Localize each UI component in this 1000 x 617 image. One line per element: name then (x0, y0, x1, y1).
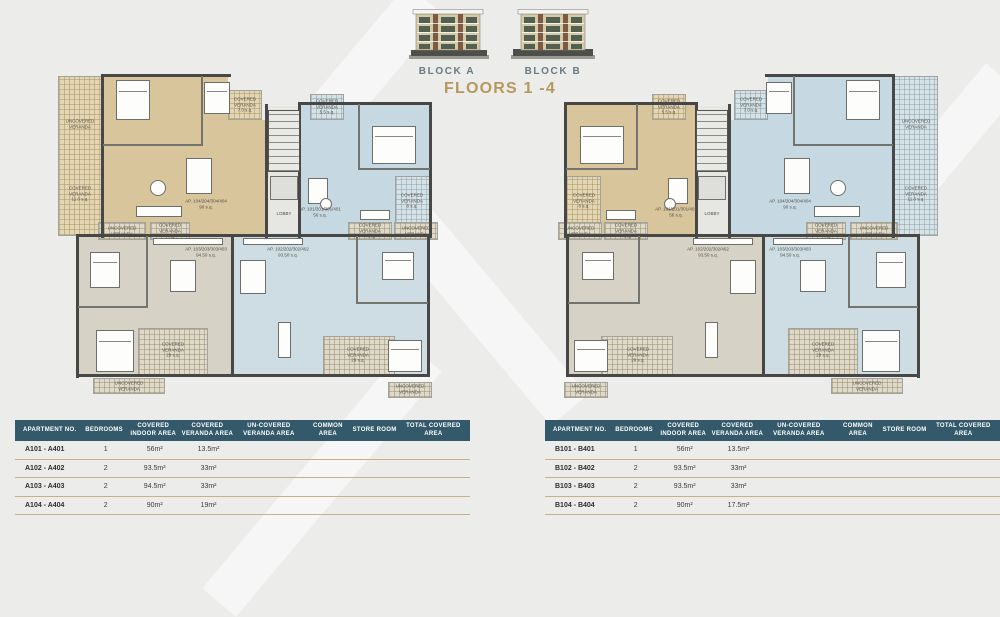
column-header: APARTMENT NO. (545, 427, 612, 434)
wall (358, 104, 360, 170)
wall (101, 74, 231, 77)
column-header: UN-COVERED VERANDA AREA (234, 423, 303, 437)
column-header: COVERED VERANDA AREA (180, 423, 234, 437)
wall (201, 76, 203, 146)
table-header-row: APARTMENT NO.BEDROOMSCOVERED INDOOR AREA… (15, 420, 470, 441)
dining-table (730, 260, 756, 294)
block-a-area-table: APARTMENT NO.BEDROOMSCOVERED INDOOR AREA… (15, 420, 470, 515)
wall (848, 306, 918, 308)
wall (103, 144, 203, 146)
table-cell: 93.5m² (658, 465, 712, 472)
plan-label: COVERED VERANDA 5.5 s.q. (304, 99, 350, 116)
sofa (606, 210, 636, 220)
wall (78, 306, 148, 308)
column-header: UN-COVERED VERANDA AREA (764, 423, 833, 437)
table-cell: A101 - A401 (15, 446, 84, 453)
table-cell: 1 (614, 446, 658, 453)
kitchen-counter (693, 238, 753, 245)
table-cell: B102 - B402 (545, 465, 614, 472)
veranda-region (893, 76, 938, 236)
column-header: STORE ROOM (882, 427, 926, 434)
column-header: COVERED INDOOR AREA (126, 423, 180, 437)
bed (862, 330, 900, 372)
plan-label: COVERED VERANDA 4 s.q. (147, 223, 193, 240)
table-cell: 13.5m² (712, 446, 766, 453)
wall (566, 234, 569, 376)
table-cell: B104 - B404 (545, 502, 614, 509)
elevator (698, 176, 726, 200)
header: BLOCK A (403, 6, 597, 98)
plan-label: COVERED VERANDA 29 s.q. (800, 342, 846, 359)
table-cell: A102 - A402 (15, 465, 84, 472)
column-header: STORE ROOM (352, 427, 396, 434)
table-cell: A104 - A404 (15, 502, 84, 509)
plan-label: COVERED VERANDA 29 s.q. (615, 347, 661, 364)
plan-label: UNCOVERED VERANDA (387, 383, 433, 394)
table-cell: 19m² (182, 502, 236, 509)
bed (846, 80, 880, 120)
table-cell: 90m² (128, 502, 182, 509)
table-cell: 33m² (182, 483, 236, 490)
column-header: BEDROOMS (82, 427, 126, 434)
bed (388, 340, 422, 372)
plan-label: UNCOVERED VERANDA (393, 225, 439, 236)
table-row: B104 - B404290m²17.5m² (545, 497, 1000, 516)
column-header: TOTAL COVERED AREA (927, 423, 1000, 437)
sofa (814, 206, 860, 217)
table-cell: 2 (614, 465, 658, 472)
sofa (136, 206, 182, 217)
plan-label: UNCOVERED VERANDA (57, 118, 103, 129)
table-cell: 1 (84, 446, 128, 453)
wall (231, 374, 430, 377)
wall (356, 236, 358, 304)
wall (429, 102, 432, 238)
plan-label: UNCOVERED VERANDA (557, 225, 603, 236)
bed (116, 80, 150, 120)
table-cell: 33m² (712, 465, 766, 472)
kitchen-counter (243, 238, 303, 245)
plan-label: COVERED VERANDA 11.0 s.q. (57, 186, 103, 203)
wall (231, 234, 234, 377)
block-b-label: BLOCK B (525, 66, 582, 77)
plan-label: COVERED VERANDA 4 s.q. (803, 223, 849, 240)
plan-label: UNCOVERED VERANDA (851, 225, 897, 236)
bed (382, 252, 414, 280)
table-row: A101 - A401156m²13.5m² (15, 441, 470, 460)
wall (793, 144, 893, 146)
table-cell: B103 - B403 (545, 483, 614, 490)
dining-table (186, 158, 212, 194)
dining-table (800, 260, 826, 292)
table-header-row: APARTMENT NO.BEDROOMSCOVERED INDOOR AREA… (545, 420, 1000, 441)
table-cell: 93.5m² (128, 465, 182, 472)
wall (356, 302, 428, 304)
wall (146, 236, 148, 306)
block-b-area-table: APARTMENT NO.BEDROOMSCOVERED INDOOR AREA… (545, 420, 1000, 515)
table-row: A102 - A402293.5m²33m² (15, 460, 470, 479)
table-row: B103 - B403293.5m²33m² (545, 478, 1000, 497)
table-cell: A103 - A403 (15, 483, 84, 490)
bed (90, 252, 120, 288)
block-a-elevation (403, 6, 491, 62)
staircase (268, 110, 300, 172)
bed (574, 340, 608, 372)
plan-label: UNCOVERED VERANDA (106, 380, 152, 391)
table-cell: 2 (614, 483, 658, 490)
column-header: COMMON AREA (303, 423, 352, 437)
table-cell: 56m² (128, 446, 182, 453)
plan-label: AP. 103/203/303/403 94.50 s.q. (183, 246, 229, 257)
table-row: B102 - B402293.5m²33m² (545, 460, 1000, 479)
plan-label: UNCOVERED VERANDA (563, 383, 609, 394)
table-cell: 2 (84, 465, 128, 472)
wall (793, 76, 795, 146)
dining-table (170, 260, 196, 292)
plan-label: UNCOVERED VERANDA (844, 380, 890, 391)
table-cell: 90m² (658, 502, 712, 509)
bed (372, 126, 416, 164)
wall (568, 302, 640, 304)
table-cell: 94.5m² (128, 483, 182, 490)
block-a-column: BLOCK A (403, 6, 491, 77)
table-cell: 33m² (182, 465, 236, 472)
wall (566, 168, 638, 170)
floorplan-block-b: UNCOVERED VERANDACOVERED VERANDA 11.0 s.… (548, 66, 938, 396)
sofa (705, 322, 718, 358)
wall (358, 168, 430, 170)
plan-label: UNCOVERED VERANDA (99, 225, 145, 236)
plan-label: COVERED VERANDA 8 s.q. (561, 193, 607, 210)
unit-region-104 (228, 120, 268, 236)
sofa (360, 210, 390, 220)
column-header: APARTMENT NO. (15, 427, 82, 434)
table-cell: 33m² (712, 483, 766, 490)
veranda-region (58, 76, 103, 236)
plan-label: UNCOVERED VERANDA (893, 118, 939, 129)
table-row: B101 - B401156m²13.5m² (545, 441, 1000, 460)
floorplan-sheet: BLOCK A (0, 0, 1000, 500)
plan-label: COVERED VERANDA 11.0 s.q. (893, 186, 939, 203)
table-cell: 13.5m² (182, 446, 236, 453)
plan-label: COVERED VERANDA 7.0 s.q. (728, 97, 774, 114)
wall (760, 374, 920, 377)
wall (638, 236, 640, 304)
plan-label: AP. 102/202/302/402 93.50 s.q. (685, 246, 731, 257)
staircase (696, 110, 728, 172)
block-b-elevation (509, 6, 597, 62)
column-header: BEDROOMS (612, 427, 656, 434)
column-header: COMMON AREA (833, 423, 882, 437)
plan-label: AP. 104/204/304/404 90 s.q. (183, 198, 229, 209)
table-cell: 56m² (658, 446, 712, 453)
table-row: A103 - A403294.5m²33m² (15, 478, 470, 497)
wall (765, 74, 895, 77)
wall (728, 104, 731, 238)
bed (876, 252, 906, 288)
plan-label: COVERED VERANDA 7.0 s.q. (222, 97, 268, 114)
table-cell: 2 (84, 483, 128, 490)
table-cell: B101 - B401 (545, 446, 614, 453)
column-header: COVERED INDOOR AREA (656, 423, 710, 437)
block-a-label: BLOCK A (419, 66, 475, 77)
wall (762, 234, 765, 377)
plan-label: COVERED VERANDA 5.5 s.q. (646, 99, 692, 116)
page-title: FLOORS 1 -4 (403, 80, 597, 98)
dining-table (784, 158, 810, 194)
table-cell: 2 (614, 502, 658, 509)
plan-label: COVERED VERANDA 4 s.q. (347, 223, 393, 240)
column-header: COVERED VERANDA AREA (710, 423, 764, 437)
wall (427, 234, 430, 376)
bed (582, 252, 614, 280)
wall (892, 74, 895, 238)
dining-table (240, 260, 266, 294)
coffee-table (830, 180, 846, 196)
block-b-column: BLOCK B (509, 6, 597, 77)
plan-label: AP. 101/201/301/401 56 s.q. (653, 206, 699, 217)
bed (580, 126, 624, 164)
column-header: TOTAL COVERED AREA (397, 423, 470, 437)
wall (101, 74, 104, 238)
sofa (278, 322, 291, 358)
elevator (270, 176, 298, 200)
plan-label: AP. 102/202/302/402 93.50 s.q. (265, 246, 311, 257)
wall (564, 102, 567, 238)
plan-label: AP. 104/204/304/404 90 s.q. (767, 198, 813, 209)
table-row: A104 - A404290m²19m² (15, 497, 470, 516)
wall (636, 104, 638, 170)
bed (96, 330, 134, 372)
floorplan-block-a: UNCOVERED VERANDACOVERED VERANDA 11.0 s.… (58, 66, 448, 396)
wall (848, 236, 850, 306)
plan-label: COVERED VERANDA 4 s.q. (603, 223, 649, 240)
plan-label: AP. 103/203/303/403 94.50 s.q. (767, 246, 813, 257)
plan-label: COVERED VERANDA 29 s.q. (150, 342, 196, 359)
plan-label: COVERED VERANDA 8 s.q. (389, 193, 435, 210)
plan-label: AP. 101/201/301/401 56 s.q. (297, 206, 343, 217)
table-cell: 17.5m² (712, 502, 766, 509)
coffee-table (150, 180, 166, 196)
plan-label: COVERED VERANDA 29 s.q. (335, 347, 381, 364)
table-cell: 2 (84, 502, 128, 509)
unit-region-104 (728, 120, 768, 236)
table-cell: 93.5m² (658, 483, 712, 490)
wall (566, 374, 765, 377)
wall (76, 374, 236, 377)
